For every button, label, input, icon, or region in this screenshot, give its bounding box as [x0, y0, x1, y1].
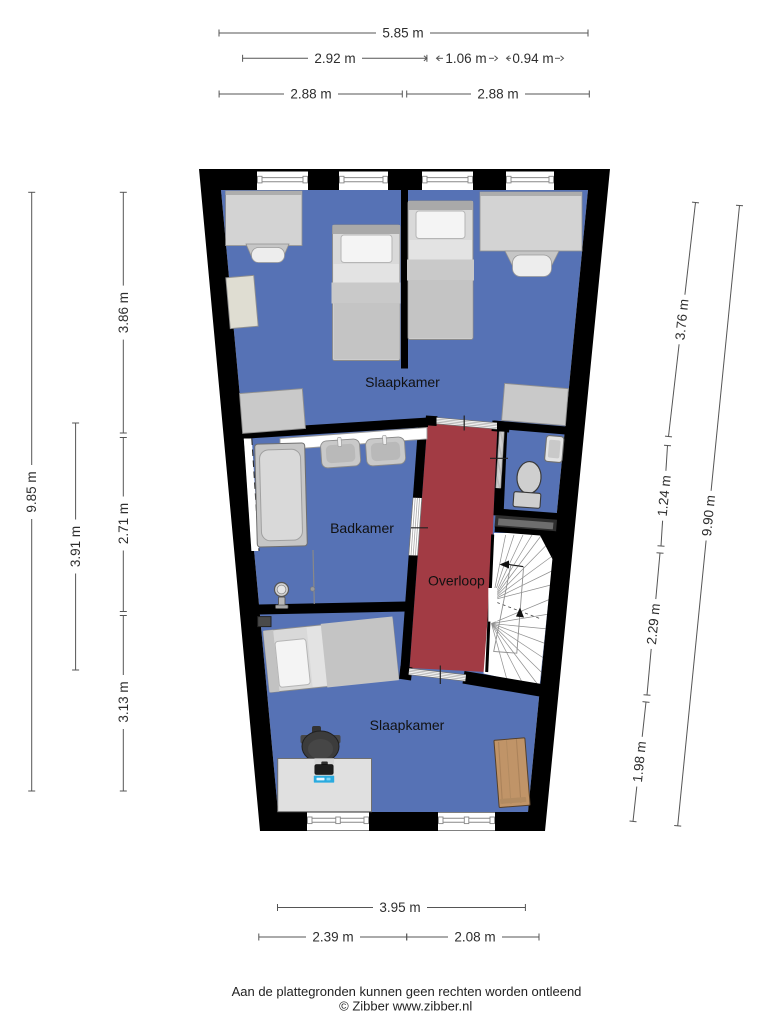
svg-text:9.85 m: 9.85 m	[24, 471, 39, 512]
svg-text:3.95 m: 3.95 m	[379, 900, 420, 915]
svg-text:2.08 m: 2.08 m	[454, 930, 495, 945]
svg-text:3.86 m: 3.86 m	[116, 292, 131, 333]
svg-text:2.92 m: 2.92 m	[314, 51, 355, 66]
svg-text:3.13 m: 3.13 m	[116, 681, 131, 722]
svg-text:5.85 m: 5.85 m	[382, 26, 423, 41]
svg-text:Badkamer: Badkamer	[330, 520, 394, 536]
svg-text:2.39 m: 2.39 m	[312, 930, 353, 945]
svg-text:2.88 m: 2.88 m	[477, 87, 518, 102]
svg-text:Overloop: Overloop	[428, 573, 485, 589]
svg-text:Slaapkamer: Slaapkamer	[370, 717, 445, 733]
svg-text:0.94 m: 0.94 m	[512, 51, 553, 66]
svg-text:3.91 m: 3.91 m	[68, 526, 83, 567]
svg-text:© Zibber www.zibber.nl: © Zibber www.zibber.nl	[339, 998, 472, 1013]
svg-text:1.06 m: 1.06 m	[445, 51, 486, 66]
svg-text:Aan de plattegronden kunnen ge: Aan de plattegronden kunnen geen rechten…	[232, 984, 582, 999]
svg-text:2.71 m: 2.71 m	[116, 503, 131, 544]
svg-text:2.88 m: 2.88 m	[290, 87, 331, 102]
svg-text:Slaapkamer: Slaapkamer	[365, 374, 440, 390]
